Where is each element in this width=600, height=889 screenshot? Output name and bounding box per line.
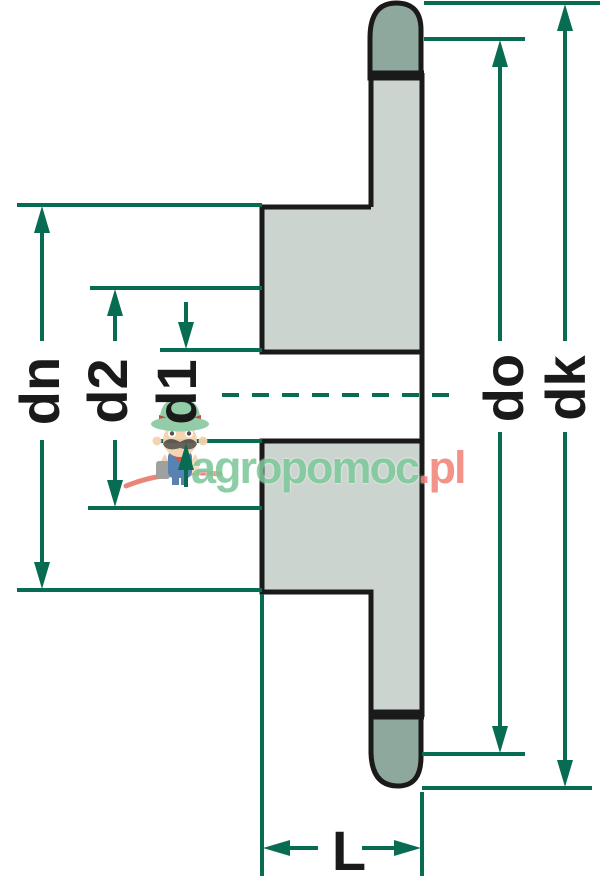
watermark-brand: agropomoc: [191, 442, 418, 493]
tooth-bottom: [371, 712, 421, 786]
watermark-text: agropomoc.pl: [191, 445, 465, 490]
tooth-top: [370, 3, 421, 78]
sprocket-part: [250, 3, 424, 786]
sprocket-drawing-canvas: dn d2 d1 do dk L agropomoc.pl: [0, 0, 600, 889]
d1-label: d1: [127, 342, 227, 442]
dk-label: dk: [516, 338, 600, 438]
watermark-brand-suffix: .pl: [418, 442, 465, 493]
bore-hole: [250, 355, 420, 439]
L-label: L: [299, 801, 399, 889]
